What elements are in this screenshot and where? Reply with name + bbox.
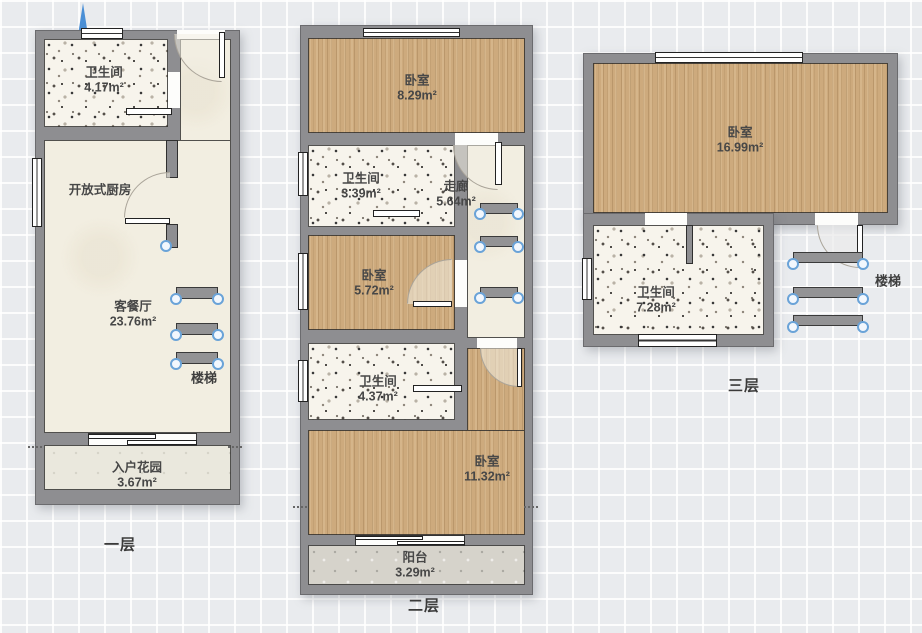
bathroom-sliding-door-f1[interactable]: [126, 108, 172, 115]
floor-3-caption: 三层: [728, 375, 760, 396]
stair-handle[interactable]: [212, 293, 224, 305]
garden-slider-panel-f1[interactable]: [127, 440, 197, 445]
dimension-tick: [28, 446, 42, 448]
room-label-bathroom-f1: 卫生间4.17m²: [84, 66, 124, 95]
bedroom-door-leaf-f2[interactable]: [495, 142, 502, 185]
room-label-bedroom-572: 卧室5.72m²: [354, 269, 394, 298]
garden-slider-panel-f1[interactable]: [88, 434, 156, 439]
room-label-bathroom-728: 卫生间7.28m²: [636, 286, 676, 315]
bedroom-door-gap-f3: [815, 213, 858, 225]
dimension-tick: [228, 446, 242, 448]
bedroom-572-door-gap-f2: [455, 260, 467, 307]
stair-step[interactable]: [793, 287, 863, 298]
stairs-label-f3: 楼梯: [875, 271, 901, 290]
window-left-3-f2[interactable]: [298, 360, 308, 402]
room-label-bathroom-339: 卫生间3.39m²: [341, 172, 381, 201]
window-bottom-f3[interactable]: [638, 334, 717, 347]
stair-handle[interactable]: [474, 241, 486, 253]
kitchen-door-leaf-f1[interactable]: [125, 218, 170, 224]
room-label-bedroom-1699: 卧室16.99m²: [717, 126, 764, 155]
stair-handle[interactable]: [787, 258, 799, 270]
wall-stub-bathroom-f3: [686, 225, 693, 264]
dimension-tick: [524, 506, 538, 508]
floor-3-plan: 楼梯 卧室16.99m² 卫生间7.28m²: [583, 53, 908, 347]
bathroom-437-sliding-door-f2[interactable]: [413, 385, 462, 392]
stair-handle[interactable]: [170, 329, 182, 341]
room-label-bedroom-1132: 卧室11.32m²: [464, 455, 510, 484]
stair-handle[interactable]: [787, 293, 799, 305]
stair-handle[interactable]: [857, 321, 869, 333]
entry-door-leaf-f1[interactable]: [219, 32, 225, 78]
room-label-balcony: 阳台3.29m²: [395, 551, 435, 580]
room-label-corridor: 走廊5.64m²: [436, 180, 476, 209]
stair-handle[interactable]: [170, 293, 182, 305]
stair-step[interactable]: [793, 252, 863, 263]
room-label-living-f1: 客餐厅23.76m²: [110, 300, 157, 329]
window-top-f3[interactable]: [655, 52, 803, 63]
room-label-bathroom-437: 卫生间4.37m²: [358, 375, 398, 404]
stair-handle[interactable]: [857, 258, 869, 270]
bedroom-572-door-leaf-f2[interactable]: [413, 301, 452, 307]
room-label-bedroom-829: 卧室8.29m²: [397, 74, 437, 103]
stair-handle[interactable]: [474, 208, 486, 220]
balcony-slider-panel-f2[interactable]: [355, 536, 423, 540]
room-bathroom-728-f3[interactable]: [593, 225, 764, 335]
stair-handle[interactable]: [512, 292, 524, 304]
floor-2-plan: 卧室8.29m² 卫生间3.39m² 走廊5.64m² 卧室5.72m² 卫生间…: [300, 25, 533, 595]
window-top-f2[interactable]: [363, 28, 460, 37]
stairs-label-f1: 楼梯: [191, 368, 217, 387]
window-left-f1[interactable]: [32, 158, 42, 227]
stair-step[interactable]: [793, 315, 863, 326]
window-left-2-f2[interactable]: [298, 253, 308, 310]
wall-node-handle-f1[interactable]: [160, 240, 172, 252]
window-left-1-f2[interactable]: [298, 152, 308, 196]
room-label-garden-f1: 入户花园3.67m²: [112, 461, 162, 490]
floor-1-caption: 一层: [104, 534, 136, 555]
balcony-slider-panel-f2[interactable]: [397, 541, 465, 545]
bedroom-door-gap-f2: [455, 133, 498, 145]
stair-handle[interactable]: [787, 321, 799, 333]
bathroom-339-sliding-door-f2[interactable]: [373, 210, 420, 217]
window-left-f3[interactable]: [582, 258, 592, 300]
floorplan-canvas: 南 楼梯: [0, 0, 922, 633]
stair-handle[interactable]: [512, 241, 524, 253]
floor-2-caption: 二层: [408, 595, 440, 616]
stair-handle[interactable]: [857, 293, 869, 305]
stair-handle[interactable]: [474, 292, 486, 304]
stair-handle[interactable]: [212, 329, 224, 341]
stair-handle[interactable]: [512, 208, 524, 220]
corridor-door-leaf-f2[interactable]: [517, 348, 522, 387]
stair-handle[interactable]: [170, 358, 182, 370]
window-top-f1[interactable]: [81, 28, 123, 39]
dimension-tick: [293, 506, 307, 508]
room-label-kitchen-f1: 开放式厨房: [69, 183, 132, 198]
floor-1-plan: 楼梯 卫生间4.17m² 开放式厨房 客餐厅23.76m² 入户花园3.67m²: [35, 30, 240, 505]
corridor-door-gap-f2: [477, 338, 517, 348]
bathroom-door-gap-f3: [645, 213, 687, 225]
bathroom-door-gap-f1: [168, 72, 180, 108]
